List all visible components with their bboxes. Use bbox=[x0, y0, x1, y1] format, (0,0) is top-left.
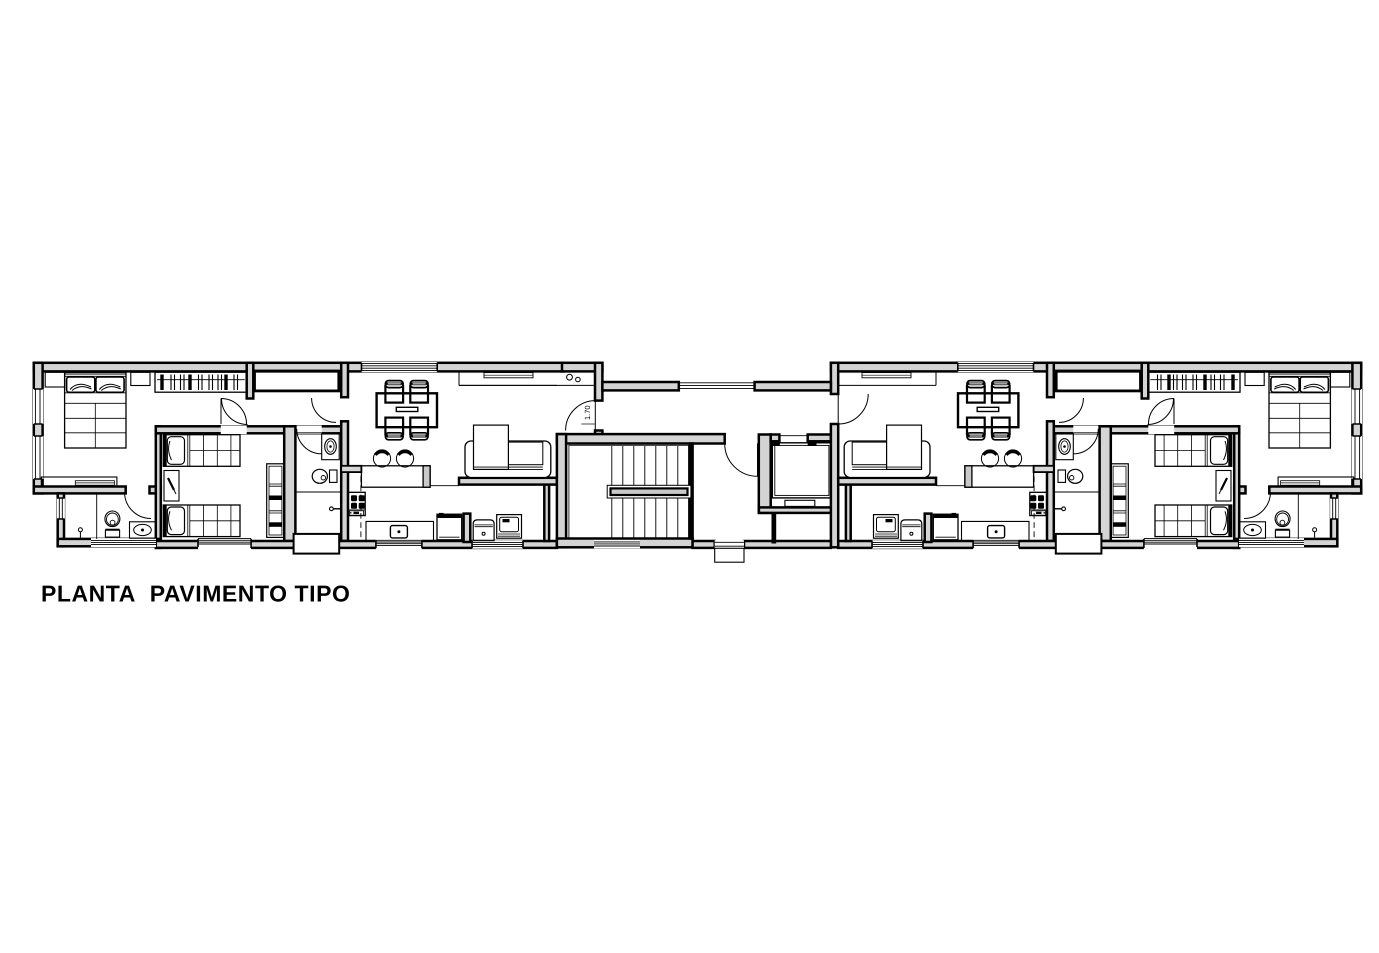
svg-text:PLANTA PAVIMENTO TIPO: PLANTA PAVIMENTO TIPO bbox=[41, 581, 350, 607]
svg-text:1.70: 1.70 bbox=[583, 405, 592, 420]
